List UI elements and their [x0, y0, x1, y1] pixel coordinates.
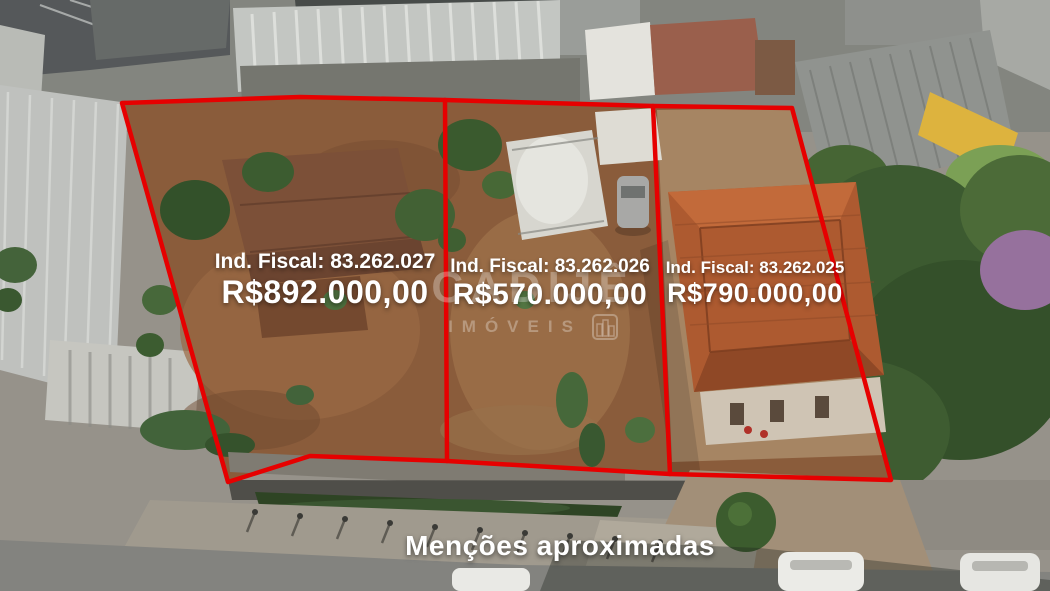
lot3-info: Ind. Fiscal: 83.262.025 R$790.000,00	[640, 258, 870, 309]
aerial-photo: CADIJÊ IMÓVEIS Ind. Fiscal: 83.262.027 R…	[0, 0, 1050, 591]
lot2-price: R$570.000,00	[453, 278, 648, 313]
buildings-icon	[592, 314, 618, 340]
lot2-fiscal-id: Ind. Fiscal: 83.262.026	[450, 256, 650, 278]
lot3-fiscal-id: Ind. Fiscal: 83.262.025	[666, 258, 845, 278]
lot3-price: R$790.000,00	[667, 278, 843, 309]
lot2-info: Ind. Fiscal: 83.262.026 R$570.000,00	[430, 256, 670, 312]
watermark-subtitle: IMÓVEIS	[448, 317, 582, 337]
lot1-fiscal-id: Ind. Fiscal: 83.262.027	[215, 250, 436, 274]
lot2-back-roof	[595, 108, 662, 165]
approximate-boundaries-caption: Menções aproximadas	[405, 530, 715, 562]
round-bush-highlight	[728, 502, 752, 526]
lot1-price: R$892.000,00	[221, 274, 428, 311]
lot2-carport-canopy	[506, 130, 608, 240]
lot2-parked-car	[615, 176, 651, 236]
lot1-info: Ind. Fiscal: 83.262.027 R$892.000,00	[205, 250, 445, 311]
